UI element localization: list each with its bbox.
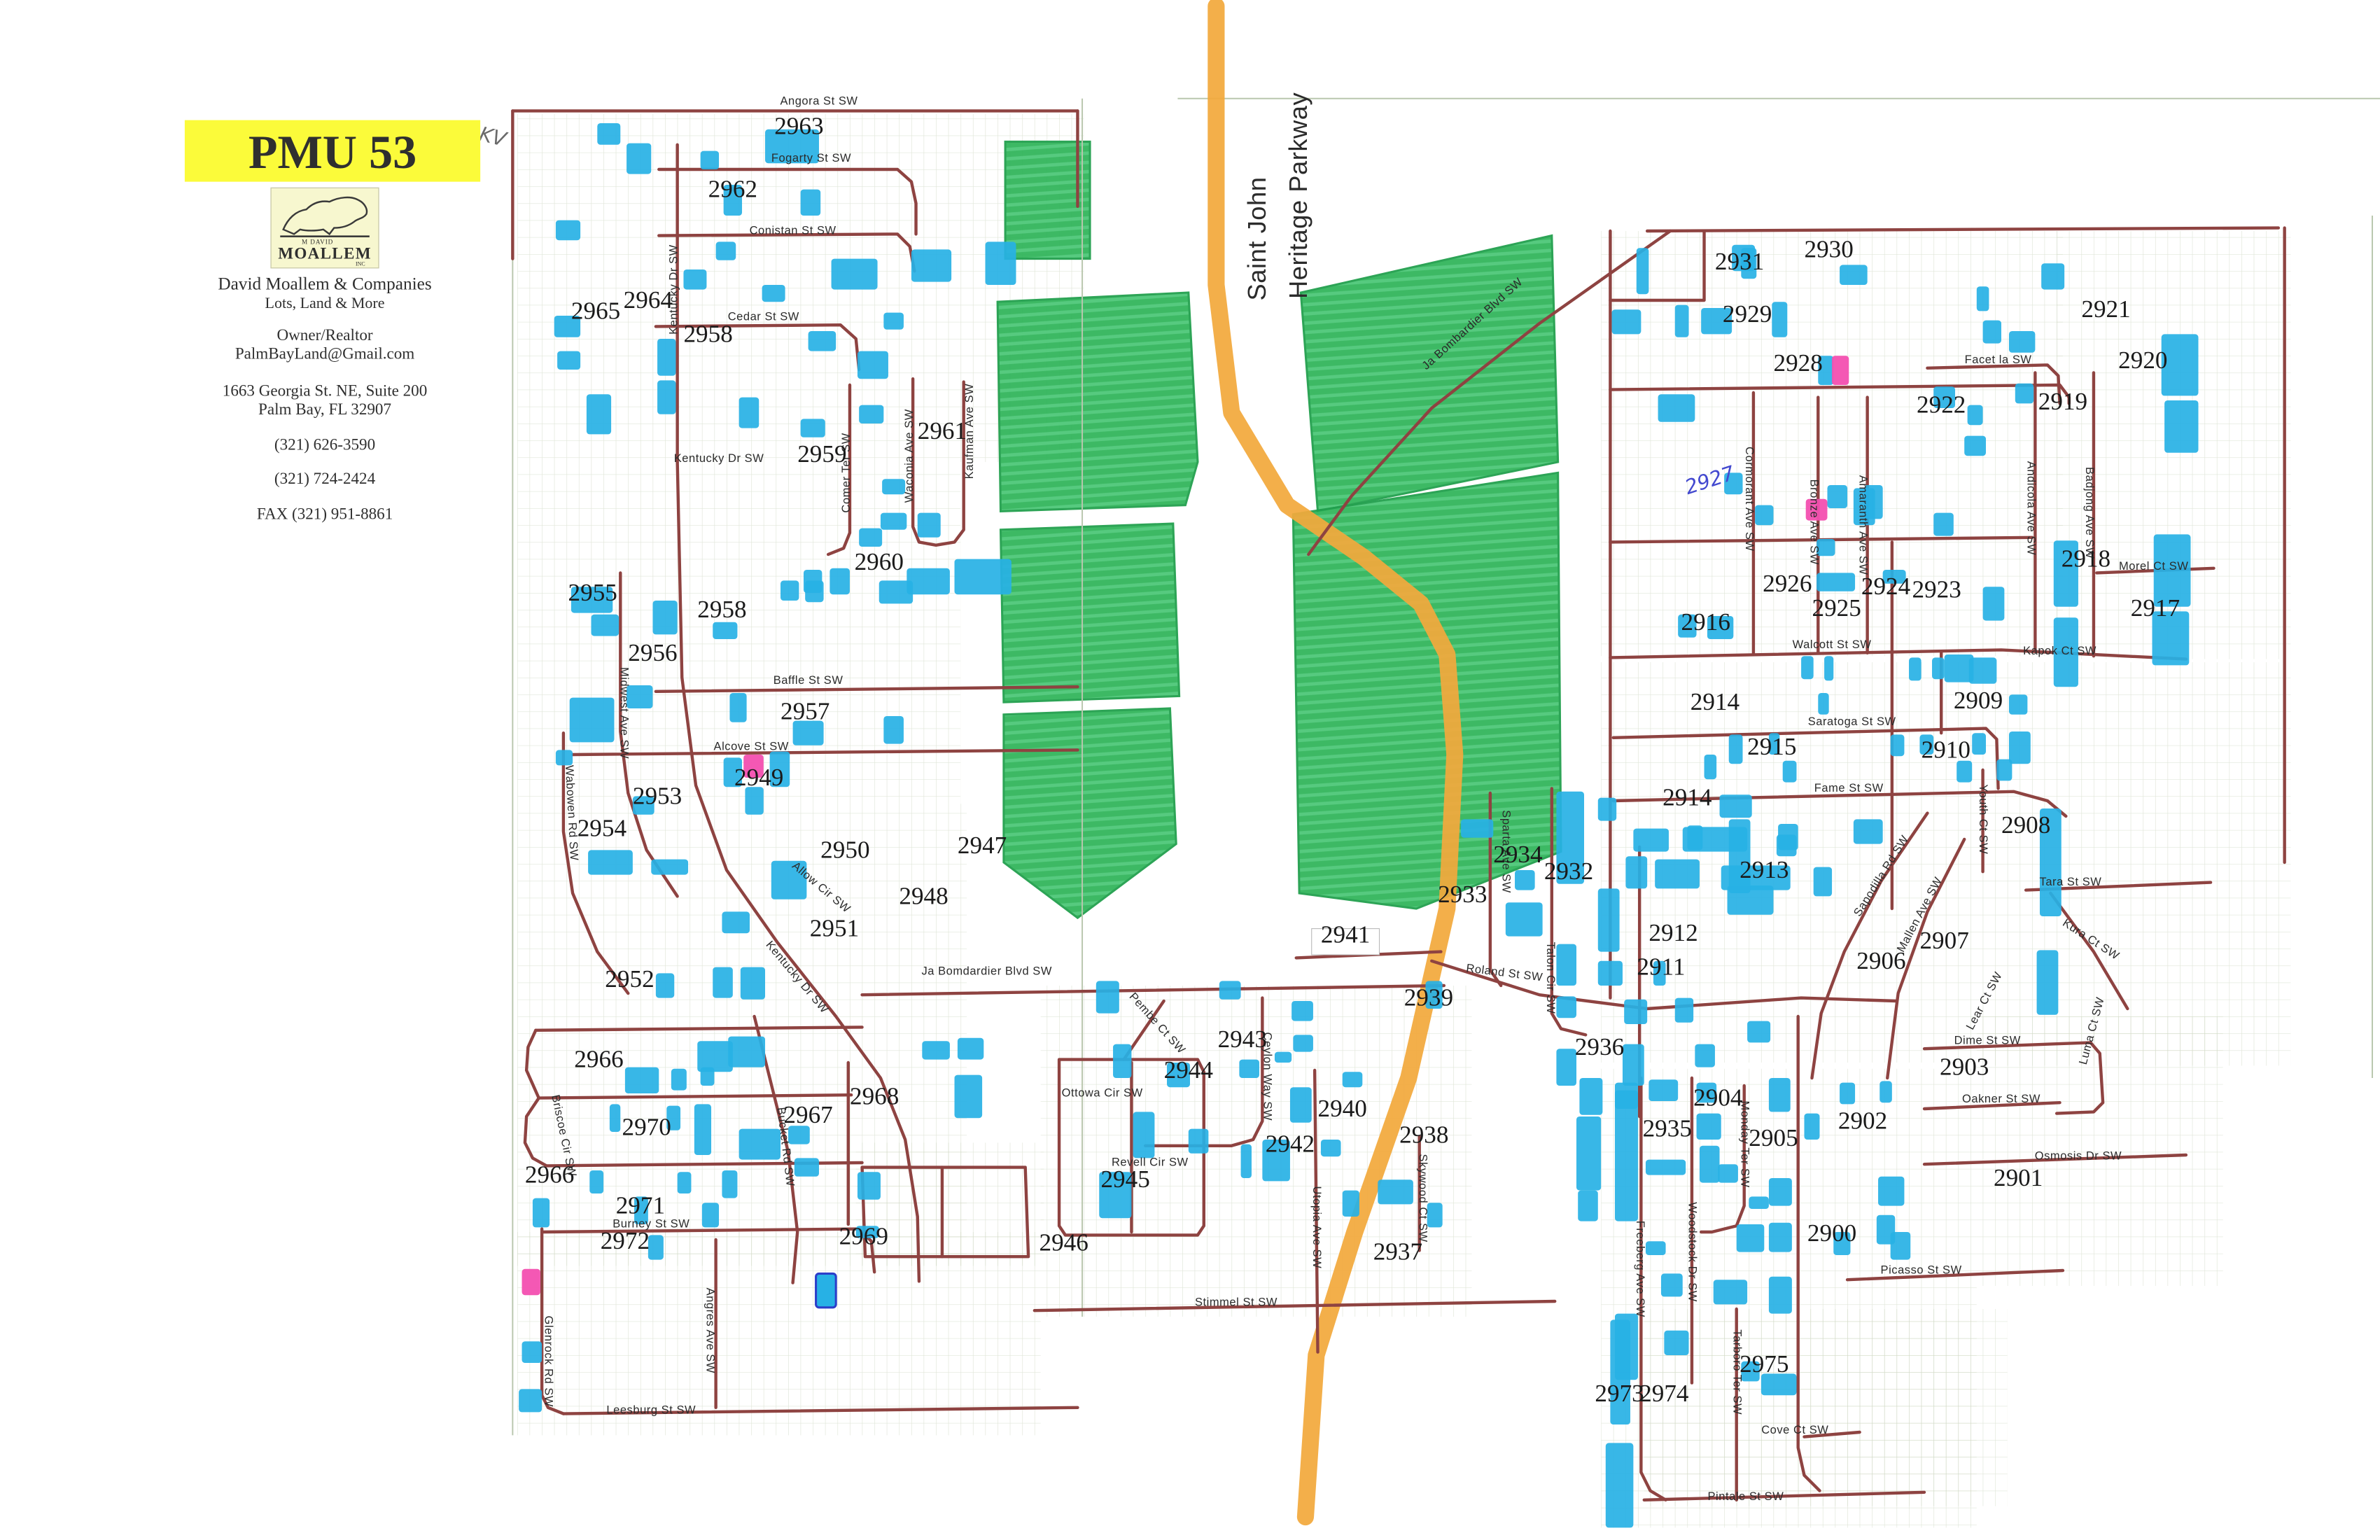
- blue-highlighted-lot: [859, 405, 883, 423]
- blue-highlighted-lot: [533, 1198, 549, 1228]
- blue-highlighted-lot: [1769, 1078, 1791, 1112]
- section-number: 2918: [2061, 545, 2110, 573]
- blue-highlighted-lot: [1714, 1280, 1747, 1304]
- blue-highlighted-lot: [794, 1158, 819, 1176]
- section-number: 2917: [2131, 594, 2180, 622]
- blue-highlighted-lot: [1576, 1116, 1601, 1191]
- blue-highlighted-lot: [1275, 1052, 1291, 1063]
- blue-highlighted-lot: [1556, 944, 1576, 986]
- section-number: 2933: [1438, 881, 1487, 908]
- blue-highlighted-lot: [882, 479, 905, 494]
- blue-highlighted-lot: [1427, 1203, 1443, 1227]
- blue-highlighted-lot: [1506, 902, 1543, 936]
- section-number: 2969: [839, 1223, 888, 1250]
- blue-highlighted-lot: [701, 151, 719, 169]
- blue-highlighted-lot: [651, 860, 688, 875]
- street-label: Kapok Ct SW: [2023, 645, 2096, 657]
- street-label: Baffle St SW: [773, 674, 843, 687]
- street-label: Alcove St SW: [714, 740, 789, 752]
- blue-highlighted-lot: [1646, 1160, 1686, 1175]
- section-number: 2931: [1715, 248, 1764, 275]
- street-label: Dime St SW: [1954, 1035, 2021, 1047]
- blue-highlighted-lot: [587, 394, 611, 434]
- section-number: 2958: [683, 320, 732, 347]
- blue-highlighted-lot: [1964, 436, 1986, 456]
- section-number: 2939: [1404, 984, 1453, 1011]
- phone-number-1: (321) 626-3590: [274, 435, 375, 453]
- section-number: 2962: [708, 176, 757, 203]
- blue-highlighted-lot: [1321, 1140, 1341, 1156]
- section-number: 2913: [1739, 856, 1788, 883]
- section-number: 2940: [1318, 1095, 1367, 1122]
- street-label: Kentucky Dr SW: [674, 452, 764, 465]
- street-label: Bronze Ave SW: [1807, 479, 1820, 565]
- section-number: 2932: [1544, 857, 1593, 885]
- blue-highlighted-lot: [702, 1203, 719, 1227]
- blue-highlighted-lot: [652, 601, 677, 634]
- blue-highlighted-lot: [1804, 1114, 1819, 1140]
- section-number: 2916: [1681, 608, 1730, 636]
- blue-highlighted-lot: [1769, 1178, 1792, 1206]
- section-number: 2965: [571, 297, 620, 324]
- blue-highlighted-lot: [610, 1104, 620, 1132]
- section-number: 2966: [574, 1046, 623, 1073]
- blue-highlighted-lot: [739, 398, 759, 428]
- company-name: David Moallem & Companies: [218, 274, 431, 294]
- blue-highlighted-lot: [657, 339, 675, 376]
- blue-highlighted-lot: [1801, 656, 1814, 679]
- blue-highlighted-lot: [2009, 731, 2031, 764]
- section-number: 2943: [1218, 1025, 1267, 1053]
- blue-highlighted-lot: [625, 1067, 659, 1093]
- blue-highlighted-lot: [1749, 1196, 1769, 1209]
- blue-highlighted-lot: [1239, 1060, 1259, 1078]
- section-number: 2961: [918, 417, 967, 444]
- blue-highlighted-lot: [1579, 1078, 1602, 1115]
- street-label: Andicola Ave SW: [2024, 461, 2037, 555]
- section-number: 2928: [1774, 349, 1823, 377]
- section-number: 2945: [1100, 1165, 1149, 1193]
- blue-highlighted-lot: [716, 241, 736, 260]
- blue-highlighted-lot: [762, 285, 785, 302]
- blue-highlighted-lot: [1637, 248, 1649, 294]
- section-number: 2911: [1637, 953, 1685, 981]
- section-number: 2964: [624, 286, 673, 314]
- section-number: 2967: [783, 1101, 832, 1128]
- blue-highlighted-lot: [1293, 1035, 1313, 1051]
- blue-highlighted-lot: [1816, 573, 1855, 591]
- section-number: 2968: [850, 1082, 899, 1109]
- blue-highlighted-lot: [1909, 657, 1921, 680]
- blue-highlighted-lot: [1747, 1021, 1770, 1043]
- blue-highlighted-lot: [741, 967, 765, 1000]
- section-number: 2948: [899, 882, 948, 909]
- pmu53-plat-map: Angora St SWFogarty St SWConistan St SWC…: [0, 0, 2380, 1540]
- blue-highlighted-lot: [1606, 1443, 1634, 1527]
- phone-number-2: (321) 724-2424: [274, 469, 376, 487]
- logo-sub-text: INC: [356, 260, 365, 267]
- street-label: Midwest Ave SW: [617, 667, 630, 759]
- section-number: 2938: [1399, 1121, 1448, 1148]
- blue-highlighted-lot: [589, 1170, 603, 1193]
- section-number: 2921: [2081, 295, 2130, 323]
- section-number: 2902: [1838, 1107, 1887, 1135]
- section-number: 2934: [1493, 841, 1543, 868]
- blue-highlighted-lot: [1648, 1079, 1678, 1101]
- pen-outlined-lot: [816, 1273, 836, 1307]
- blue-highlighted-lot: [1729, 734, 1743, 764]
- blue-highlighted-lot: [1623, 1044, 1644, 1086]
- blue-highlighted-lot: [1891, 734, 1905, 756]
- blue-highlighted-lot: [1932, 657, 1945, 679]
- blue-highlighted-lot: [694, 1104, 711, 1155]
- blue-highlighted-lot: [1646, 1241, 1666, 1255]
- blue-highlighted-lot: [883, 313, 904, 330]
- section-number: 2903: [1940, 1053, 1989, 1081]
- street-label: Cedar St SW: [728, 311, 799, 323]
- blue-highlighted-lot: [829, 568, 850, 594]
- blue-highlighted-lot: [729, 693, 746, 722]
- blue-highlighted-lot: [745, 787, 763, 815]
- blue-highlighted-lot: [1769, 1277, 1792, 1314]
- section-number: 2958: [697, 596, 746, 623]
- blue-highlighted-lot: [1378, 1179, 1413, 1204]
- blue-highlighted-lot: [1878, 1177, 1904, 1206]
- blue-highlighted-lot: [1219, 981, 1241, 999]
- blue-highlighted-lot: [722, 911, 750, 933]
- blue-highlighted-lot: [713, 967, 733, 998]
- section-number: 2944: [1164, 1056, 1214, 1084]
- section-number: 2953: [633, 782, 682, 809]
- blue-highlighted-lot: [1772, 302, 1787, 337]
- blue-highlighted-lot: [1972, 733, 1986, 755]
- section-number: 2910: [1921, 736, 1970, 763]
- street-label: Woodstock Dr SW: [1686, 1202, 1699, 1302]
- blue-highlighted-lot: [1718, 1164, 1738, 1182]
- blue-highlighted-lot: [1096, 981, 1119, 1013]
- blue-highlighted-lot: [1661, 1273, 1683, 1296]
- section-number: 2963: [774, 112, 823, 139]
- blue-highlighted-lot: [648, 1235, 664, 1259]
- blue-highlighted-lot: [519, 1389, 542, 1412]
- street-label: Glenrock Rd SW: [542, 1316, 555, 1407]
- section-number: 2906: [1856, 947, 1905, 974]
- section-number: 2947: [958, 832, 1007, 859]
- contact-email: PalmBayLand@Gmail.com: [235, 344, 414, 363]
- blue-highlighted-lot: [1658, 394, 1695, 422]
- blue-highlighted-lot: [1720, 794, 1752, 818]
- section-number: 2904: [1693, 1084, 1743, 1112]
- blue-highlighted-lot: [1695, 1044, 1715, 1067]
- blue-highlighted-lot: [1241, 1144, 1252, 1178]
- blue-highlighted-lot: [1783, 761, 1797, 783]
- lot-grid-patch: [1989, 662, 2290, 1065]
- street-label: Talon Cir SW: [1544, 942, 1557, 1014]
- blue-highlighted-lot: [1675, 305, 1689, 337]
- company-tagline: Lots, Land & More: [265, 294, 385, 311]
- blue-highlighted-lot: [1827, 485, 1847, 508]
- blue-highlighted-lot: [1515, 870, 1535, 890]
- blue-highlighted-lot: [1189, 1129, 1209, 1154]
- blue-highlighted-lot: [879, 580, 913, 603]
- section-number: 2974: [1639, 1380, 1689, 1407]
- blue-highlighted-lot: [739, 1129, 780, 1160]
- blue-highlighted-lot: [922, 1041, 950, 1059]
- street-label: Morel Ct SW: [2119, 560, 2188, 573]
- blue-highlighted-lot: [2037, 950, 2059, 1014]
- blue-highlighted-lot: [1655, 860, 1700, 889]
- blue-highlighted-lot: [1625, 856, 1647, 888]
- section-number: 2952: [605, 965, 654, 993]
- blue-highlighted-lot: [1598, 961, 1623, 986]
- street-label: Osmosis Dr SW: [2035, 1150, 2122, 1163]
- blue-highlighted-lot: [911, 249, 951, 281]
- section-number: 2970: [622, 1113, 671, 1140]
- blue-highlighted-lot: [671, 1069, 687, 1091]
- blue-highlighted-lot: [588, 850, 633, 874]
- section-number: 2959: [797, 440, 846, 468]
- blue-highlighted-lot: [1675, 998, 1693, 1023]
- blue-highlighted-lot: [2164, 400, 2198, 453]
- street-label: Angres Ave SW: [703, 1288, 716, 1373]
- blue-highlighted-lot: [1615, 1091, 1638, 1221]
- address-line2: Palm Bay, FL 32907: [258, 400, 391, 418]
- street-label: Utopia Ave SW: [1310, 1186, 1323, 1269]
- green-parcel: [1000, 524, 1179, 702]
- section-number: 2930: [1804, 235, 1853, 262]
- section-number: 2975: [1739, 1350, 1788, 1378]
- blue-highlighted-lot: [556, 220, 580, 241]
- blue-highlighted-lot: [2041, 263, 2064, 289]
- section-number: 2914: [1662, 784, 1712, 811]
- blue-highlighted-lot: [713, 622, 737, 639]
- blue-highlighted-lot: [857, 351, 888, 379]
- blue-highlighted-lot: [1969, 657, 1997, 683]
- blue-highlighted-lot: [1624, 1000, 1647, 1024]
- blue-highlighted-lot: [1290, 1087, 1312, 1123]
- blue-highlighted-lot: [2015, 384, 2033, 404]
- blue-highlighted-lot: [2009, 694, 2027, 715]
- section-number: 2936: [1575, 1033, 1624, 1060]
- street-label: Oakner St SW: [1962, 1093, 2040, 1105]
- parkway-label-line1: Saint John: [1242, 177, 1271, 301]
- blue-highlighted-lot: [906, 568, 950, 594]
- street-label: Fame St SW: [1814, 782, 1884, 794]
- section-number: 2941: [1321, 920, 1370, 948]
- blue-highlighted-lot: [1777, 834, 1797, 856]
- blue-highlighted-lot: [881, 513, 906, 530]
- street-label: Amaranth Ave SW: [1857, 475, 1870, 575]
- blue-highlighted-lot: [591, 615, 619, 636]
- section-number: 2949: [734, 764, 783, 791]
- blue-highlighted-lot: [857, 1172, 881, 1200]
- blue-highlighted-lot: [2009, 331, 2035, 353]
- section-number: 2966: [525, 1161, 574, 1189]
- green-parcel: [997, 293, 1198, 511]
- street-label: Ja Bomdardier Blvd SW: [921, 965, 1051, 978]
- street-label: Fogarty St SW: [771, 152, 851, 164]
- blue-highlighted-lot: [1598, 798, 1616, 821]
- blue-highlighted-lot: [1610, 1319, 1630, 1424]
- section-number: 2919: [2038, 388, 2087, 415]
- blue-highlighted-lot: [1113, 1044, 1131, 1078]
- blue-highlighted-lot: [1956, 761, 1972, 783]
- section-number: 2900: [1807, 1219, 1856, 1247]
- blue-highlighted-lot: [657, 380, 675, 414]
- blue-highlighted-lot: [883, 716, 904, 744]
- parkway-label-line2: Heritage Parkway: [1284, 92, 1312, 299]
- street-label: Conistan St SW: [750, 224, 836, 237]
- section-number: 2951: [810, 915, 859, 942]
- page-title: PMU 53: [248, 125, 416, 178]
- blue-highlighted-lot: [780, 580, 799, 601]
- blue-highlighted-lot: [1879, 1081, 1892, 1102]
- section-number: 2955: [568, 579, 617, 606]
- blue-highlighted-lot: [1633, 829, 1669, 852]
- owner-role: Owner/Realtor: [276, 325, 372, 344]
- section-number: 2929: [1723, 300, 1772, 328]
- section-number: 2901: [1994, 1164, 2043, 1191]
- blue-highlighted-lot: [1968, 405, 1983, 426]
- blue-highlighted-lot: [808, 331, 836, 351]
- street-label: Facet la SW: [1965, 353, 2032, 366]
- blue-highlighted-lot: [1933, 513, 1954, 536]
- blue-highlighted-lot: [656, 973, 674, 997]
- blue-highlighted-lot: [955, 559, 1011, 595]
- section-number: 2924: [1861, 573, 1911, 600]
- blue-highlighted-lot: [1612, 309, 1641, 334]
- section-number: 2972: [601, 1227, 650, 1254]
- blue-highlighted-lot: [788, 1126, 810, 1144]
- section-number: 2908: [2001, 811, 2050, 839]
- blue-highlighted-lot: [1737, 1224, 1765, 1252]
- blue-highlighted-lot: [678, 1172, 692, 1193]
- section-number: 2920: [2118, 346, 2167, 374]
- blue-highlighted-lot: [1700, 1146, 1720, 1183]
- blue-highlighted-lot: [1814, 867, 1832, 897]
- street-label: Freeberg Ave SW: [1634, 1221, 1646, 1317]
- blue-highlighted-lot: [1854, 819, 1883, 843]
- blue-highlighted-lot: [1133, 1112, 1155, 1158]
- blue-highlighted-lot: [1556, 1049, 1576, 1086]
- blue-highlighted-lot: [955, 1075, 983, 1119]
- blue-highlighted-lot: [1840, 265, 1868, 285]
- blue-highlighted-lot: [859, 528, 882, 547]
- blue-highlighted-lot: [722, 1170, 737, 1198]
- blue-highlighted-lot: [918, 513, 941, 538]
- street-label: Ottowa Cir SW: [1062, 1086, 1143, 1099]
- section-number: 2922: [1917, 391, 1966, 419]
- blue-highlighted-lot: [1769, 1223, 1792, 1252]
- street-label: Pintale St SW: [1708, 1490, 1784, 1503]
- blue-highlighted-lot: [1824, 656, 1833, 680]
- street-label: Stimmel St SW: [1195, 1296, 1277, 1309]
- company-logo: M DAVID MOALLEM INC: [271, 188, 379, 267]
- section-number: 2925: [1812, 594, 1861, 622]
- blue-highlighted-lot: [1996, 759, 2012, 781]
- section-number: 2909: [1954, 687, 2003, 714]
- blue-highlighted-lot: [1840, 1083, 1855, 1105]
- section-number: 2950: [820, 836, 869, 863]
- blue-highlighted-lot: [1977, 286, 1989, 311]
- blue-highlighted-lot: [801, 190, 821, 216]
- blue-highlighted-lot: [1664, 1331, 1688, 1355]
- address-line1: 1663 Georgia St. NE, Suite 200: [223, 381, 427, 399]
- street-label: Waconia Ave SW: [903, 409, 916, 503]
- section-number: 2912: [1648, 919, 1697, 946]
- blue-highlighted-lot: [1983, 321, 2001, 344]
- blue-highlighted-lot: [683, 269, 706, 290]
- street-label: Saratoga St SW: [1808, 715, 1896, 728]
- blue-highlighted-lot: [1598, 888, 1620, 951]
- logo-name-text: MOALLEM: [278, 244, 372, 262]
- blue-highlighted-lot: [801, 419, 825, 437]
- blue-highlighted-lot: [1556, 996, 1576, 1018]
- blue-highlighted-lot: [1578, 1191, 1598, 1221]
- blue-highlighted-lot: [1704, 755, 1717, 779]
- street-label: Walcott St SW: [1793, 638, 1872, 651]
- street-label: Cormorant Ave SW: [1743, 447, 1756, 552]
- blue-highlighted-lot: [522, 1341, 542, 1363]
- blue-highlighted-lot: [1983, 587, 2005, 620]
- section-number: 2956: [628, 639, 677, 666]
- section-number: 2960: [855, 548, 904, 575]
- section-number: 2954: [577, 815, 627, 842]
- street-label: Youth Ct SW: [1977, 784, 1989, 854]
- blue-highlighted-lot: [986, 241, 1016, 285]
- street-label: Angora St SW: [780, 95, 857, 108]
- blue-highlighted-lot: [557, 351, 580, 370]
- pink-highlighted-lot: [1832, 356, 1849, 385]
- section-number: 2914: [1690, 688, 1740, 715]
- section-number: 2937: [1373, 1238, 1422, 1266]
- street-label: Leesburg St SW: [606, 1404, 696, 1417]
- section-number: 2971: [616, 1192, 665, 1219]
- blue-highlighted-lot: [832, 259, 878, 290]
- section-number: 2935: [1643, 1115, 1692, 1142]
- blue-highlighted-lot: [1461, 819, 1493, 837]
- blue-highlighted-lot: [626, 143, 651, 174]
- pink-highlighted-lot: [522, 1269, 540, 1295]
- section-number: 2926: [1763, 570, 1812, 597]
- blue-highlighted-lot: [1343, 1191, 1359, 1217]
- section-number: 2973: [1595, 1380, 1644, 1407]
- blue-highlighted-lot: [805, 580, 823, 602]
- blue-highlighted-lot: [1755, 505, 1773, 526]
- blue-highlighted-lot: [1343, 1072, 1363, 1087]
- blue-highlighted-lot: [728, 1037, 765, 1067]
- section-number: 2907: [1919, 927, 1968, 954]
- blue-highlighted-lot: [597, 123, 620, 145]
- section-number: 2946: [1039, 1228, 1088, 1256]
- fax-number: FAX (321) 951-8861: [257, 504, 393, 522]
- blue-highlighted-lot: [556, 750, 573, 765]
- street-label: Skywood Ct SW: [1417, 1154, 1429, 1242]
- blue-highlighted-lot: [1687, 825, 1702, 850]
- blue-highlighted-lot: [1818, 693, 1828, 715]
- section-number: 2915: [1747, 733, 1796, 760]
- lot-grid-patch: [1644, 1309, 2008, 1506]
- blue-highlighted-lot: [697, 1041, 733, 1072]
- street-label: Tara St SW: [2040, 876, 2102, 888]
- blue-highlighted-lot: [1697, 1114, 1721, 1140]
- blue-highlighted-lot: [626, 685, 652, 708]
- blue-highlighted-lot: [958, 1038, 983, 1060]
- blue-highlighted-lot: [1891, 1232, 1911, 1260]
- street-label: Cove Ct SW: [1761, 1424, 1828, 1436]
- blue-highlighted-lot: [1291, 1001, 1313, 1021]
- section-number: 2942: [1266, 1130, 1315, 1158]
